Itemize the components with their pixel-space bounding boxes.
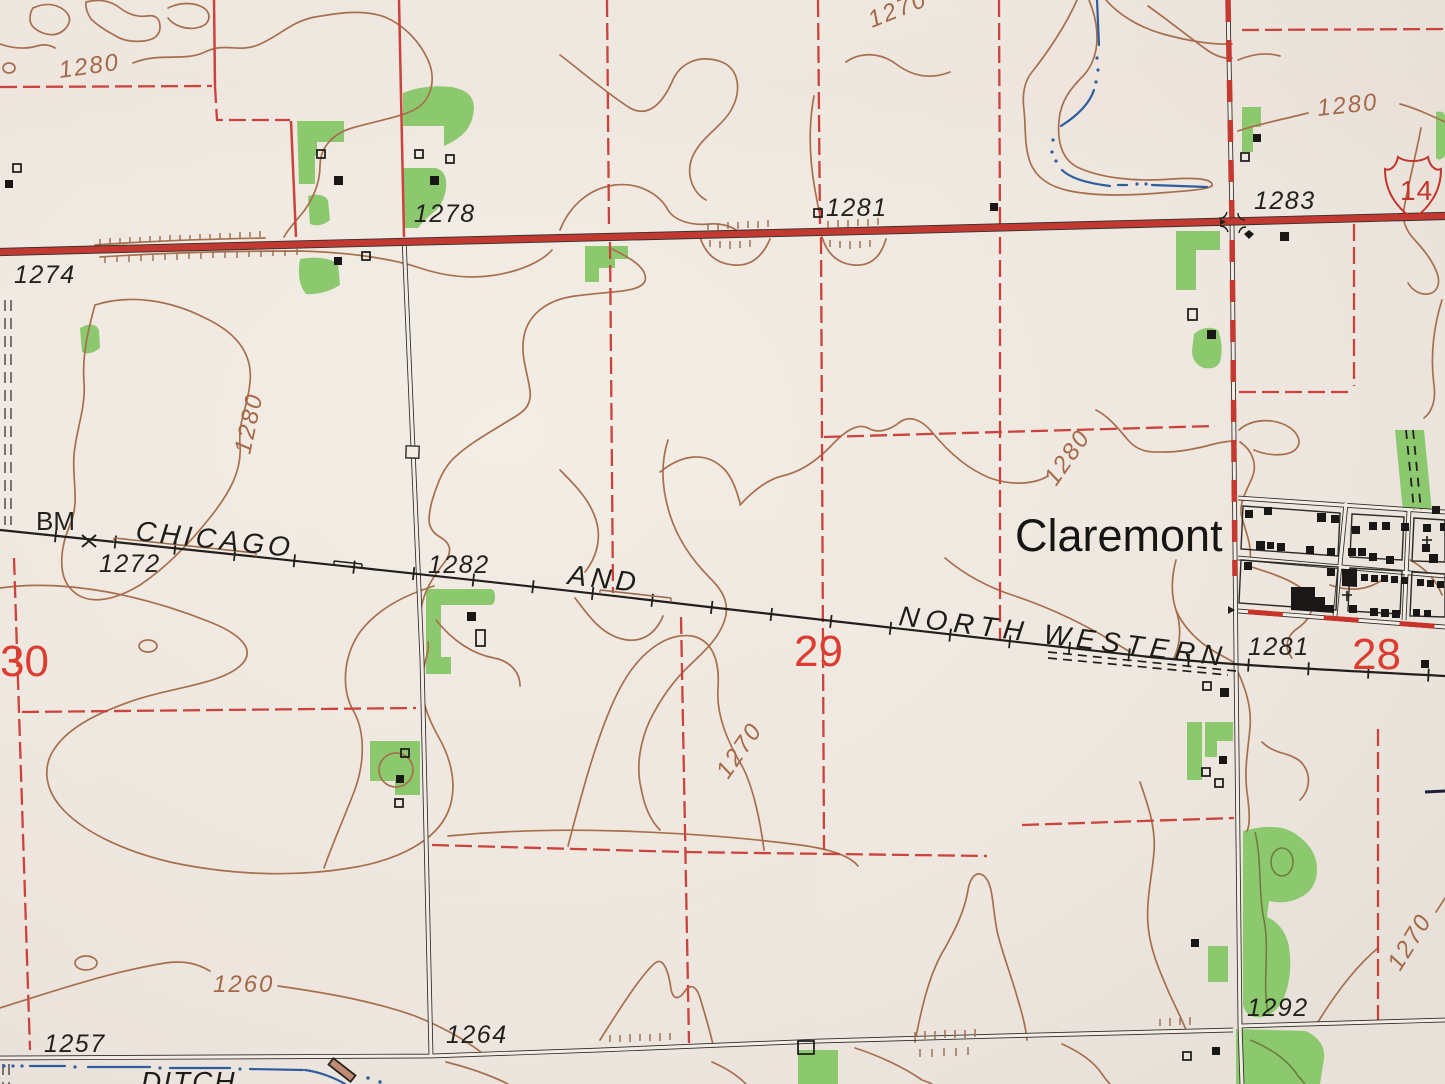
svg-text:1260: 1260 <box>213 971 274 998</box>
svg-text:1257: 1257 <box>44 1030 106 1058</box>
svg-text:1274: 1274 <box>14 261 76 289</box>
svg-text:Claremont: Claremont <box>1015 510 1223 561</box>
svg-text:1283: 1283 <box>1254 187 1316 215</box>
svg-text:29: 29 <box>794 627 843 676</box>
svg-text:1272: 1272 <box>99 550 161 578</box>
svg-text:BM: BM <box>36 506 75 536</box>
svg-text:1278: 1278 <box>414 200 476 228</box>
svg-text:DITCH: DITCH <box>141 1066 237 1084</box>
svg-text:1281: 1281 <box>826 194 888 222</box>
svg-text:1282: 1282 <box>428 551 490 579</box>
svg-text:14: 14 <box>1400 175 1433 206</box>
svg-text:1292: 1292 <box>1247 994 1309 1022</box>
svg-text:30: 30 <box>0 637 49 686</box>
svg-text:1281: 1281 <box>1248 633 1310 661</box>
svg-text:1264: 1264 <box>446 1021 508 1049</box>
svg-text:28: 28 <box>1352 630 1401 679</box>
